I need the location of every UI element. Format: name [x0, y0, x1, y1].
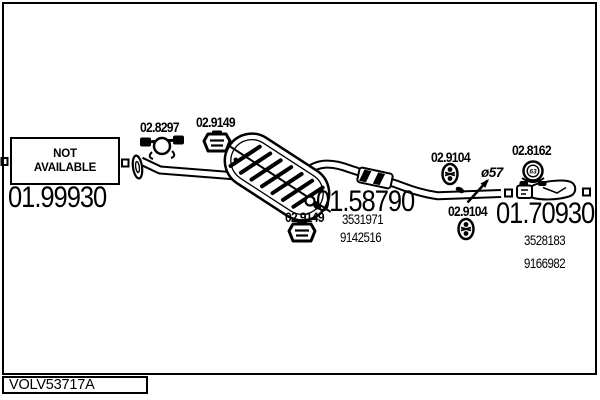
fitting-code-pipe-clamp: 02.8297 [140, 121, 179, 135]
oe-number-rear-1: 3528183 [524, 234, 565, 248]
part-number-front: 01.99930 [8, 183, 106, 213]
catalog-code: VOLV53717A [9, 377, 95, 393]
not-available-line1: NOT [53, 147, 77, 161]
fitting-code-mount-upper: 02.9104 [431, 151, 470, 165]
exhaust-parts-diagram: 63 VOLV53717A NOT AVAILABLE 01.99930 01.… [0, 0, 600, 400]
not-available-box: NOT AVAILABLE [10, 137, 120, 185]
not-available-line2: AVAILABLE [34, 161, 96, 175]
catalog-code-box: VOLV53717A [2, 376, 148, 394]
oe-number-middle-2: 9142516 [340, 231, 381, 245]
fitting-code-band-clamp: 02.8162 [512, 144, 551, 158]
fitting-code-hanger-top: 02.9149 [196, 116, 235, 130]
part-number-rear: 01.70930 [496, 199, 594, 229]
fitting-code-hanger-bottom: 02.9149 [285, 211, 324, 225]
fitting-code-mount-lower: 02.9104 [448, 205, 487, 219]
oe-number-rear-2: 9166982 [524, 257, 565, 271]
oe-number-middle-1: 3531971 [342, 213, 383, 227]
pipe-diameter-label: ø57 [481, 166, 503, 180]
